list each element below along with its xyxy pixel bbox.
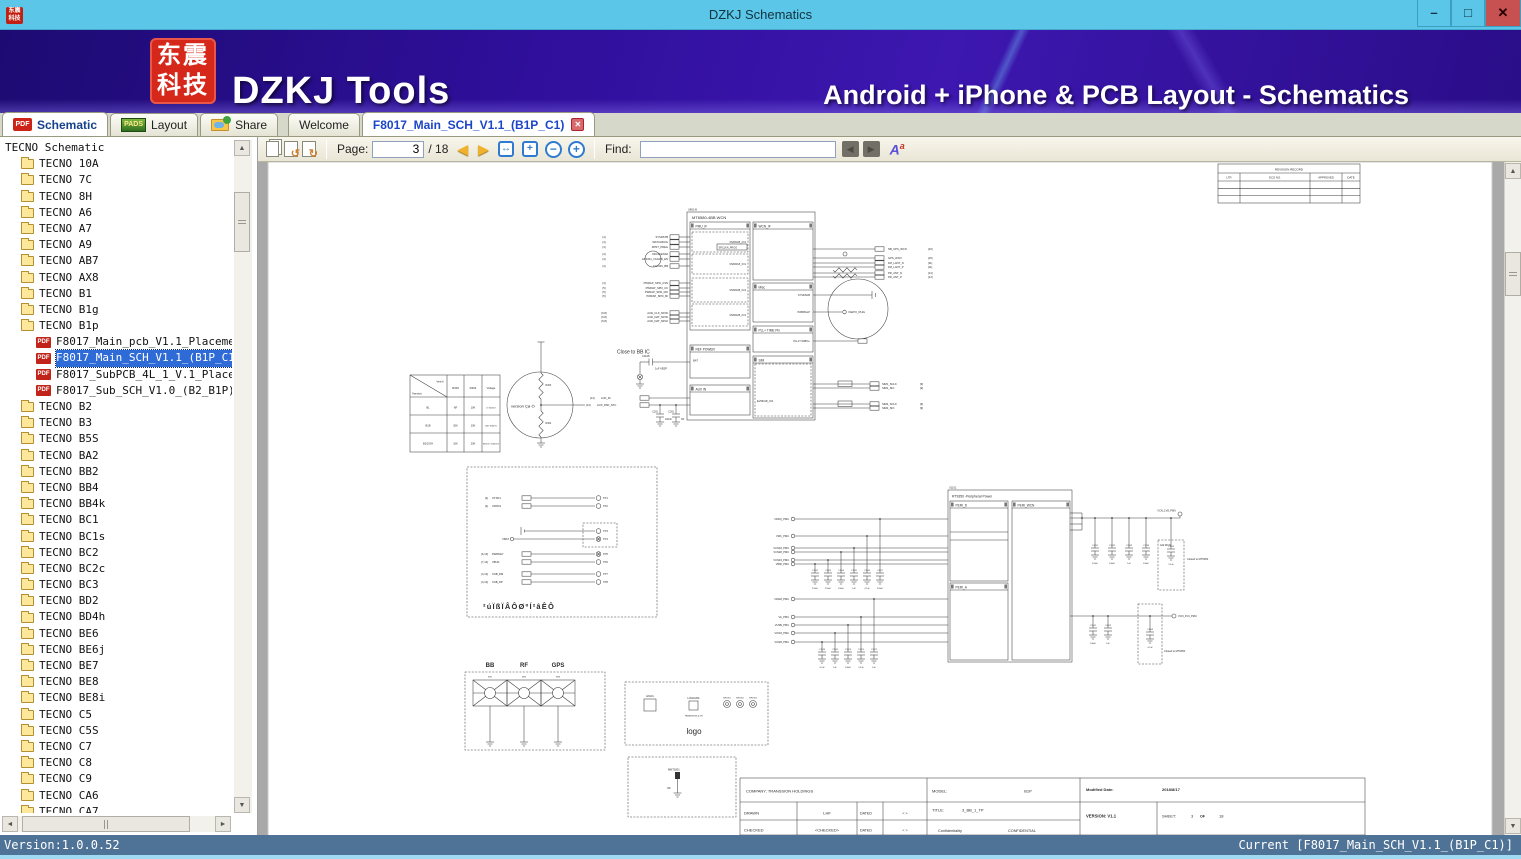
svg-text:100nF: 100nF: [1143, 563, 1150, 565]
sidebar-item[interactable]: TECNO B1: [0, 286, 232, 302]
folder-icon: [21, 613, 34, 623]
sidebar-item-label: TECNO BB4: [39, 480, 99, 496]
scroll-down-arrow[interactable]: ▼: [1505, 818, 1521, 834]
banner-tagline: Android + iPhone & PCB Layout - Schemati…: [823, 80, 1409, 111]
svg-text:10K: 10K: [471, 424, 476, 428]
svg-text:AUX_PAD_NTC: AUX_PAD_NTC: [597, 403, 616, 407]
svg-text:C1135: C1135: [1168, 546, 1175, 548]
sidebar-item-label: F8017_SubPCB_4L_1_V.1_Placement: [56, 367, 232, 383]
svg-text:C201: C201: [652, 411, 658, 414]
svg-text:VERSION: V1.1: VERSION: V1.1: [1086, 814, 1117, 819]
sidebar-item[interactable]: TECNO BE6: [0, 626, 232, 642]
svg-text:4.7uF: 4.7uF: [1147, 647, 1153, 649]
svg-text:C1119: C1119: [832, 649, 839, 651]
scroll-up-arrow[interactable]: ▲: [234, 140, 250, 156]
sidebar-item[interactable]: TECNO BC1: [0, 512, 232, 528]
sidebar-item[interactable]: TECNO BE8i: [0, 690, 232, 706]
sidebar-item-label: TECNO C8: [39, 755, 92, 771]
sidebar-item[interactable]: TECNO BE8: [0, 674, 232, 690]
svg-text:DATED: DATED: [860, 812, 872, 816]
tab-label: Share: [235, 118, 267, 132]
svg-text:PERI_A: PERI_A: [956, 586, 968, 590]
sidebar-item[interactable]: TECNO CA6: [0, 788, 232, 804]
sidebar-item[interactable]: PDFF8017_SubPCB_4L_1_V.1_Placement: [0, 367, 232, 383]
folder-icon: [21, 661, 34, 671]
close-tab-icon[interactable]: ✕: [571, 118, 584, 131]
sidebar-item-label: TECNO B3: [39, 415, 92, 431]
app-name: DZKJ Tools: [232, 70, 450, 113]
svg-text:BAT: BAT: [693, 359, 698, 363]
sidebar-horizontal-scrollbar[interactable]: ◄ ►: [2, 816, 231, 832]
svg-text:SIM2_SIO: SIM2_SIO: [882, 406, 894, 410]
sidebar-item[interactable]: TECNO CA7: [0, 804, 232, 813]
svg-text:DVDD28_IO1: DVDD28_IO1: [730, 313, 747, 317]
svg-text:18: 18: [1219, 814, 1224, 819]
svg-text:LOGO1801: LOGO1801: [687, 697, 700, 700]
match-case-icon[interactable]: Aa: [890, 141, 905, 158]
svg-text:DVDD18_IO1: DVDD18_IO1: [730, 262, 747, 266]
folder-icon: [21, 564, 34, 574]
prev-page-button[interactable]: ◀: [457, 139, 468, 159]
svg-text:VMC_PMU: VMC_PMU: [776, 534, 789, 538]
minimize-button[interactable]: –: [1417, 0, 1451, 27]
svg-text:[5]: [5]: [603, 290, 606, 294]
sidebar-item[interactable]: TECNO B5S: [0, 431, 232, 447]
sidebar-vertical-scrollbar[interactable]: ▲ ▼: [234, 140, 252, 813]
svg-text:VIO18_PMU: VIO18_PMU: [774, 631, 789, 635]
svg-text:[11]: [11]: [928, 261, 933, 265]
svg-text:10K: 10K: [453, 442, 458, 446]
sidebar-item-label: TECNO CA6: [39, 788, 99, 804]
sidebar-item-label: TECNO BE6: [39, 626, 99, 642]
sidebar-item-label: TECNO BB4k: [39, 496, 105, 512]
svg-text:NB_UPS_WCN: NB_UPS_WCN: [888, 247, 907, 251]
pages-icon[interactable]: [266, 141, 279, 157]
sidebar-item-label: TECNO BC2: [39, 545, 99, 561]
tab-bar: PDF Schematic PADS Layout Share Welcome …: [0, 113, 1521, 137]
tab-document[interactable]: F8017_Main_SCH_V1.1_(B1P_C1) ✕: [362, 112, 595, 136]
sidebar-item-label: TECNO BC1: [39, 512, 99, 528]
sidebar-item[interactable]: TECNO B1p: [0, 318, 232, 334]
sidebar-item[interactable]: TECNO A7: [0, 221, 232, 237]
current-document-text: Current [F8017_Main_SCH_V1.1_(B1P_C1)]: [1238, 835, 1513, 855]
svg-text:SIM: SIM: [759, 359, 765, 363]
svg-text:PWRKEY: PWRKEY: [492, 552, 504, 556]
svg-text:EVDD18_IO1: EVDD18_IO1: [757, 399, 774, 403]
folder-icon: [21, 305, 34, 315]
svg-text:SYSRSTB: SYSRSTB: [655, 235, 668, 239]
page-label: Page:: [337, 142, 368, 156]
svg-text:SYSRSGB: SYSRSGB: [798, 294, 810, 297]
fit-width-button[interactable]: ↔: [498, 141, 514, 157]
svg-text:LTR: LTR: [1226, 176, 1231, 180]
svg-text:C1115: C1115: [851, 570, 858, 572]
svg-text:100nF: 100nF: [665, 418, 672, 421]
sidebar-item[interactable]: TECNO B3: [0, 415, 232, 431]
svg-text:C301: C301: [668, 411, 674, 414]
find-next-button[interactable]: ▶: [863, 141, 880, 157]
svg-text:[4]: [4]: [603, 257, 606, 261]
sidebar-item[interactable]: PDFF8017_Main_pcb_V1.1_Placement: [0, 334, 232, 350]
svg-text:C1122: C1122: [871, 649, 878, 651]
svg-text:ECO NO.: ECO NO.: [1269, 176, 1281, 180]
sidebar-item-label: TECNO BC3: [39, 577, 99, 593]
svg-text:Misc: Misc: [759, 286, 766, 290]
sidebar-item[interactable]: TECNO BD4h: [0, 609, 232, 625]
folder-icon: [21, 710, 34, 720]
svg-text:C1113: C1113: [825, 570, 832, 572]
svg-text:Modified Date:: Modified Date:: [1086, 787, 1114, 792]
svg-text:PWRAP_SPI0_CSN: PWRAP_SPI0_CSN: [644, 281, 668, 285]
sidebar-item-label: TECNO C5S: [39, 723, 99, 739]
svg-text:[4]: [4]: [603, 245, 606, 249]
svg-text:USB_DM: USB_DM: [492, 572, 504, 576]
sidebar-scroll-thumb[interactable]: [234, 192, 250, 252]
svg-text:BB: BB: [486, 663, 495, 669]
sidebar-item-label: TECNO AX8: [39, 270, 99, 286]
svg-text:MP1801: MP1801: [723, 697, 731, 699]
svg-text:[4,14]: [4,14]: [481, 572, 488, 576]
svg-text:RF: RF: [520, 663, 528, 669]
svg-text:GPS: GPS: [552, 663, 565, 669]
window-title: DZKJ Schematics: [0, 0, 1521, 30]
sidebar-item-label: TECNO BE8: [39, 674, 99, 690]
svg-text:VBUS: VBUS: [492, 560, 500, 564]
sidebar-item[interactable]: TECNO A9: [0, 237, 232, 253]
svg-text:900mV~1800mV: 900mV~1800mV: [483, 444, 500, 446]
svg-text:PR_ANT_P: PR_ANT_P: [888, 275, 902, 279]
svg-text:LCD_ID: LCD_ID: [601, 396, 611, 400]
tab-label: F8017_Main_SCH_V1.1_(B1P_C1): [373, 118, 564, 132]
svg-text:WCN_IF: WCN_IF: [759, 225, 771, 229]
svg-text:DATE: DATE: [1347, 176, 1354, 180]
pdf-icon: PDF: [13, 118, 32, 131]
sidebar-item[interactable]: TECNO BB4: [0, 480, 232, 496]
scroll-right-arrow[interactable]: ►: [215, 816, 231, 832]
svg-text:VCN_1V8_PMU: VCN_1V8_PMU: [1157, 509, 1176, 513]
tab-welcome[interactable]: Welcome: [288, 113, 360, 136]
svg-text:MP1802: MP1802: [736, 697, 744, 699]
svg-text:AUD_DAT_MISO: AUD_DAT_MISO: [647, 319, 668, 323]
svg-text:CHECKED: CHECKED: [744, 828, 764, 833]
svg-text:[4]: [4]: [485, 496, 488, 500]
sidebar-item[interactable]: TECNO BD2: [0, 593, 232, 609]
sidebar-item[interactable]: TECNO 7C: [0, 172, 232, 188]
svg-text:AUX IN: AUX IN: [696, 388, 707, 392]
svg-text:LHF: LHF: [823, 811, 831, 816]
svg-text:VCN28_PMU: VCN28_PMU: [773, 550, 789, 554]
svg-text:[9]: [9]: [920, 402, 923, 406]
sidebar-item[interactable]: TECNO BA2: [0, 448, 232, 464]
svg-text:2.2uF: 2.2uF: [1168, 564, 1174, 566]
svg-text:NF: NF: [667, 786, 671, 790]
svg-text:RT9350 -Peripheral Power: RT9350 -Peripheral Power: [952, 495, 993, 499]
svg-text:PLL1T WRPLL: PLL1T WRPLL: [793, 340, 810, 343]
sidebar-item-label: TECNO A7: [39, 221, 92, 237]
folder-icon: [21, 321, 34, 331]
sidebar-item[interactable]: TECNO C5: [0, 707, 232, 723]
pdf-file-icon: PDF: [36, 353, 51, 364]
scroll-left-arrow[interactable]: ◄: [2, 816, 18, 832]
svg-text:C1143: C1143: [1147, 629, 1154, 631]
svg-text:2018/8/17: 2018/8/17: [1162, 787, 1181, 792]
svg-text:<CHECKED>: <CHECKED>: [815, 828, 840, 833]
svg-text:B1B: B1B: [426, 424, 431, 428]
folder-icon: [21, 159, 34, 169]
svg-text:C1116: C1116: [864, 570, 871, 572]
scroll-up-arrow[interactable]: ▲: [1505, 163, 1521, 179]
svg-text:C1120: C1120: [845, 649, 852, 651]
svg-text:TP7: TP7: [603, 572, 608, 576]
svg-text:PWRAP_SPI0_MI: PWRAP_SPI0_MI: [646, 294, 668, 298]
folder-icon: [21, 434, 34, 444]
sidebar-item[interactable]: TECNO 10A: [0, 156, 232, 172]
folder-icon: [21, 596, 34, 606]
svg-text:USB_DP: USB_DP: [492, 580, 503, 584]
svg-text:OF: OF: [1200, 815, 1206, 819]
sidebar-item-label: TECNO AB7: [39, 253, 99, 269]
tree-root[interactable]: TECNO Schematic: [0, 140, 232, 156]
svg-text:100nF: 100nF: [845, 667, 852, 669]
sidebar-item[interactable]: TECNO C8: [0, 755, 232, 771]
sidebar-item[interactable]: TECNO BB4k: [0, 496, 232, 512]
next-page-button[interactable]: ▶: [478, 139, 489, 159]
dzkj-logo: 东震科技: [150, 38, 216, 104]
svg-text:MODEL:: MODEL:: [932, 789, 947, 794]
svg-text:URXD1: URXD1: [492, 504, 502, 508]
svg-text:TRANSSION-6.5H: TRANSSION-6.5H: [684, 715, 703, 718]
svg-text:[9]: [9]: [920, 406, 923, 410]
sidebar-item[interactable]: TECNO BC2c: [0, 561, 232, 577]
svg-text:VCN_3V3_PMU: VCN_3V3_PMU: [1178, 614, 1197, 618]
folder-icon: [21, 289, 34, 299]
sidebar-item-label: TECNO B1g: [39, 302, 99, 318]
folder-icon: [21, 629, 34, 639]
sidebar-item[interactable]: TECNO C5S: [0, 723, 232, 739]
schematic-page[interactable]: REVISION RECORDLTRECO NO.APPROVEDDATEU80…: [258, 162, 1504, 835]
page-number-input[interactable]: [372, 141, 424, 158]
sidebar-item-label: TECNO BC2c: [39, 561, 105, 577]
svg-text:R303: R303: [452, 386, 459, 390]
svg-text:APPROVED: APPROVED: [1318, 176, 1334, 180]
svg-text:[13]: [13]: [586, 403, 591, 407]
folder-icon: [21, 742, 34, 752]
sidebar-item[interactable]: PDFF8017_Sub_SCH_V1.0_(B2_B1P): [0, 383, 232, 399]
sidebar-item[interactable]: TECNO C9: [0, 771, 232, 787]
svg-text:[15]: [15]: [928, 256, 933, 260]
svg-text:DVDD28_IO1: DVDD28_IO1: [730, 240, 747, 244]
svg-text:TP6: TP6: [603, 560, 608, 564]
sidebar-item-label: TECNO B1p: [39, 318, 99, 334]
svg-text:SIM1_SCLK: SIM1_SCLK: [882, 382, 897, 386]
pads-icon: PADS: [121, 118, 146, 132]
svg-text:C1114: C1114: [838, 570, 845, 572]
svg-text:TP1: TP1: [603, 496, 608, 500]
svg-text:²úÏßÏÂÔØºÍ²âÊÔ: ²úÏßÏÂÔØºÍ²âÊÔ: [483, 602, 555, 611]
folder-icon: [21, 175, 34, 185]
svg-text:C1118: C1118: [819, 649, 826, 651]
svg-text:Closed to MT6350: Closed to MT6350: [1187, 557, 1209, 561]
pdf-file-icon: PDF: [36, 369, 51, 380]
viewer-scroll-thumb[interactable]: [1505, 252, 1521, 296]
folder-icon: [21, 807, 34, 813]
sidebar-item[interactable]: TECNO BE6j: [0, 642, 232, 658]
maximize-button[interactable]: □: [1451, 0, 1485, 27]
svg-text:SIM2_SCLK: SIM2_SCLK: [882, 402, 897, 406]
find-input[interactable]: [640, 141, 836, 158]
rotate-left-icon[interactable]: ↺: [284, 141, 298, 157]
svg-text:TITLE:: TITLE:: [932, 808, 944, 813]
svg-text:C1121: C1121: [858, 649, 865, 651]
sidebar-item-label: TECNO C9: [39, 771, 92, 787]
sidebar-item[interactable]: TECNO AX8: [0, 270, 232, 286]
tab-label: Welcome: [299, 118, 349, 132]
svg-text:PMU_IF: PMU_IF: [696, 225, 708, 229]
sidebar-item-label: F8017_Main_SCH_V1.1_(B1P_C1): [56, 350, 232, 366]
svg-text:PLL+ TIME Pin: PLL+ TIME Pin: [759, 329, 781, 333]
sidebar-item-label: F8017_Sub_SCH_V1.0_(B2_B1P): [56, 383, 232, 399]
sidebar-item[interactable]: TECNO BB2: [0, 464, 232, 480]
svg-text:TP2: TP2: [603, 504, 608, 508]
svg-text:[4]: [4]: [603, 281, 606, 285]
zoom-in-button[interactable]: +: [568, 141, 585, 158]
svg-text:VA_PMU: VA_PMU: [779, 615, 790, 619]
svg-text:[14]: [14]: [590, 396, 595, 400]
svg-text:GPS_WCN: GPS_WCN: [888, 256, 902, 260]
svg-text:100nF: 100nF: [1090, 643, 1097, 645]
svg-text:DRAWN: DRAWN: [744, 811, 759, 816]
svg-text:[4]: [4]: [603, 264, 606, 268]
svg-text:WATCHDOG: WATCHDOG: [652, 240, 668, 244]
svg-text:DATED: DATED: [860, 829, 872, 833]
titlebar: 东震科技 DZKJ Schematics – □ ✕: [0, 0, 1521, 30]
svg-text:NF: NF: [454, 406, 458, 410]
sidebar-item-label: TECNO BB2: [39, 464, 99, 480]
folder-icon: [21, 256, 34, 266]
svg-text:version Çø·Ö: version Çø·Ö: [511, 404, 535, 409]
toolbar-separator: [594, 140, 595, 159]
svg-text:[6,8]: [6,8]: [601, 311, 606, 315]
sidebar-item[interactable]: TECNO C7: [0, 739, 232, 755]
close-button[interactable]: ✕: [1485, 0, 1521, 27]
scroll-down-arrow[interactable]: ▼: [234, 797, 250, 813]
sidebar-item[interactable]: TECNO BC3: [0, 577, 232, 593]
svg-text:[6,8]: [6,8]: [601, 319, 606, 323]
sidebar-item[interactable]: TECNO AB7: [0, 253, 232, 269]
svg-text:C1142: C1142: [1105, 625, 1112, 627]
svg-text:CLK32K_BB: CLK32K_BB: [653, 264, 668, 268]
sidebar-item-label: TECNO BE8i: [39, 690, 105, 706]
find-previous-button[interactable]: ◀: [842, 141, 859, 157]
svg-text:0~300mV: 0~300mV: [486, 408, 496, 410]
svg-text:FM_LANT_N: FM_LANT_N: [888, 261, 904, 265]
pdf-file-icon: PDF: [36, 385, 51, 396]
svg-text:TP4: TP4: [603, 537, 608, 541]
sidebar-item[interactable]: TECNO B1g: [0, 302, 232, 318]
sidebar-item[interactable]: PDFF8017_Main_SCH_V1.1_(B1P_C1): [0, 350, 232, 366]
svg-text:VIO28_PMU: VIO28_PMU: [774, 640, 789, 644]
svg-text:Closed to MT6350: Closed to MT6350: [1164, 649, 1186, 653]
rotate-right-icon[interactable]: ↻: [302, 141, 316, 157]
sidebar-item-label: TECNO BE6j: [39, 642, 105, 658]
sidebar-item[interactable]: TECNO BC1s: [0, 529, 232, 545]
svg-text:[4]: [4]: [603, 240, 606, 244]
svg-text:B1P: B1P: [1024, 789, 1032, 794]
sidebar-item-label: F8017_Main_pcb_V1.1_Placement: [56, 334, 232, 350]
svg-text:KEPO_PHG: KEPO_PHG: [849, 310, 866, 314]
svg-text:B1: B1: [426, 406, 430, 410]
sidebar-hscroll-thumb[interactable]: [22, 816, 190, 832]
sidebar-item-label: TECNO CA7: [39, 804, 99, 813]
svg-text:PERI_D: PERI_D: [956, 504, 968, 508]
sidebar-item[interactable]: TECNO A6: [0, 205, 232, 221]
tab-share[interactable]: Share: [200, 113, 278, 136]
svg-text:U801-B: U801-B: [688, 208, 697, 212]
viewer-vertical-scrollbar[interactable]: ▲ ▼: [1504, 162, 1521, 835]
version-text: Version:1.0.0.52: [4, 835, 120, 855]
svg-text:NF: NF: [681, 418, 685, 421]
folder-icon: [21, 451, 34, 461]
folder-icon: [21, 499, 34, 509]
svg-text:PERI_WCN: PERI_WCN: [1018, 504, 1036, 508]
svg-text:C1117: C1117: [877, 570, 884, 572]
svg-text:20K: 20K: [453, 424, 458, 428]
sidebar: TECNO Schematic TECNO 10ATECNO 7CTECNO 8…: [0, 137, 258, 835]
find-label: Find:: [605, 142, 632, 156]
folder-icon: [21, 677, 34, 687]
svg-text:COMPANY: TRANSSION HOLDINGS: COMPANY: TRANSSION HOLDINGS: [746, 789, 814, 794]
sidebar-item[interactable]: TECNO BE7: [0, 658, 232, 674]
svg-text:TP3: TP3: [603, 529, 608, 533]
svg-text:DVDD28_IO1: DVDD28_IO1: [730, 288, 747, 292]
tab-schematic[interactable]: PDF Schematic: [2, 112, 108, 136]
sidebar-item[interactable]: TECNO 8H: [0, 189, 232, 205]
svg-text:Voltage: Voltage: [487, 386, 496, 390]
svg-text:C1134: C1134: [1143, 545, 1150, 547]
svg-text:SIM1_SIO: SIM1_SIO: [882, 386, 894, 390]
zoom-out-button[interactable]: −: [545, 141, 562, 158]
sidebar-item-label: TECNO B2: [39, 399, 92, 415]
svg-text:[6,13]: [6,13]: [481, 552, 488, 556]
svg-text:3_BB_1_TP: 3_BB_1_TP: [962, 808, 984, 813]
sidebar-item[interactable]: TECNO B2: [0, 399, 232, 415]
svg-text:20K: 20K: [471, 442, 476, 446]
folder-icon: [21, 208, 34, 218]
svg-text:TP8: TP8: [603, 580, 608, 584]
svg-text:VCN18_PMU: VCN18_PMU: [773, 546, 789, 550]
share-folder-icon: [211, 119, 229, 131]
svg-text:4.7uF: 4.7uF: [864, 588, 870, 590]
sidebar-item-label: TECNO A9: [39, 237, 92, 253]
sidebar-item-label: TECNO BD2: [39, 593, 99, 609]
fit-page-button[interactable]: +: [522, 141, 538, 157]
svg-text:[5]: [5]: [603, 286, 606, 290]
svg-text:R303: R303: [546, 384, 552, 387]
svg-text:1uF KEEP: 1uF KEEP: [655, 367, 667, 371]
folder-icon: [21, 483, 34, 493]
sidebar-item-label: TECNO BE7: [39, 658, 99, 674]
svg-text:< >: < >: [902, 812, 907, 816]
sidebar-item[interactable]: TECNO BC2: [0, 545, 232, 561]
sidebar-item-label: TECNO C7: [39, 739, 92, 755]
svg-text:B1/2/GH: B1/2/GH: [423, 442, 433, 446]
folder-icon: [21, 774, 34, 784]
folder-icon: [21, 532, 34, 542]
pdf-toolbar: ↺ ↻ Page: / 18 ◀ ▶ ↔ + − + Find: ◀ ▶ Aa: [258, 137, 1521, 162]
sidebar-item-label: TECNO A6: [39, 205, 92, 221]
tab-layout[interactable]: PADS Layout: [110, 113, 198, 136]
folder-icon: [21, 224, 34, 234]
